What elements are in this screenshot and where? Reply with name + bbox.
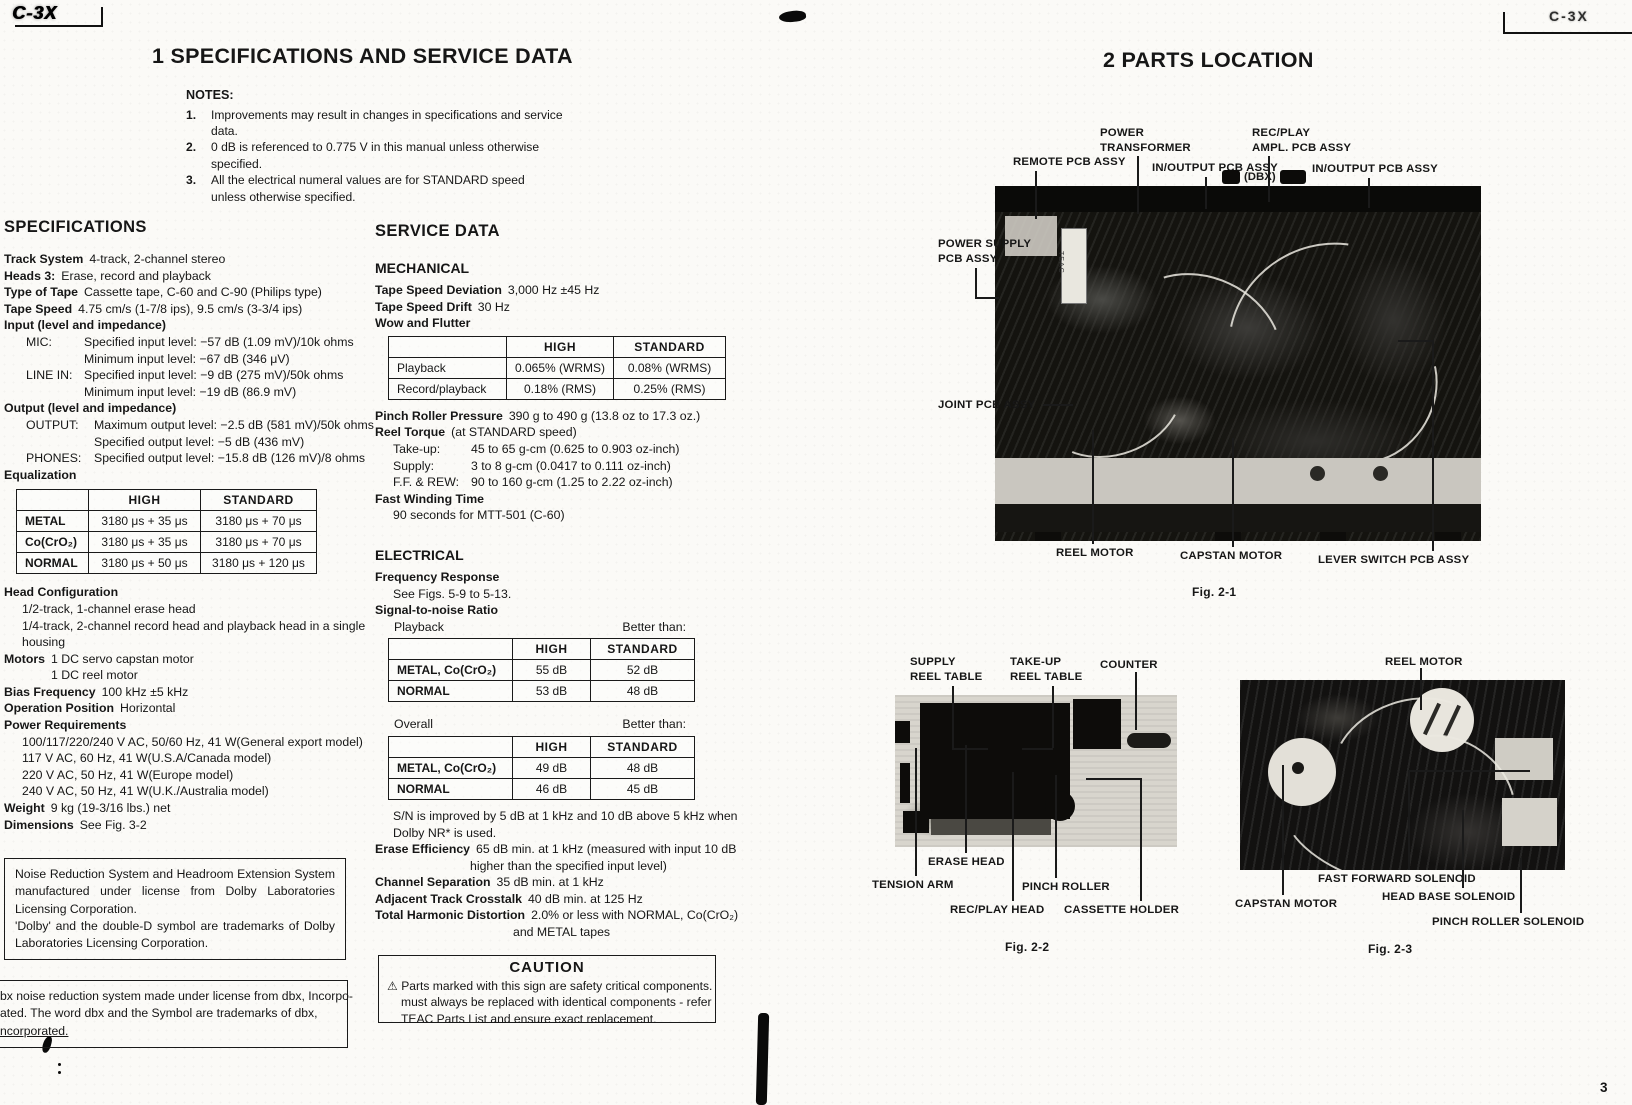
svc-reel-torque: Reel Torque(at STANDARD speed) — [375, 424, 727, 441]
warning-triangle-icon: ⚠ — [387, 979, 398, 993]
electrical-heading: ELECTRICAL — [375, 546, 727, 564]
label-cassette-holder: CASSETTE HOLDER — [1064, 903, 1179, 918]
spec-output-1: OUTPUT:Maximum output level: −2.5 dB (58… — [4, 417, 348, 434]
svc-channel-separation: Channel Separation35 dB min. at 1 kHz — [375, 874, 727, 891]
ink-dot — [58, 1063, 61, 1066]
leader-line — [1086, 778, 1141, 780]
svc-takeup: Take-up:45 to 65 g-cm (0.625 to 0.903 oz… — [375, 441, 727, 458]
leader-line — [1268, 156, 1270, 202]
spec-head-config-3: housing — [4, 634, 348, 651]
label-pinch-roller: PINCH ROLLER — [1022, 880, 1110, 895]
table-header-row: HIGH STANDARD — [17, 490, 317, 511]
foot — [1215, 532, 1241, 541]
fig-2-1-photo: TEAC — [995, 186, 1481, 541]
spec-phones: PHONES:Specified output level: −15.8 dB … — [4, 450, 348, 467]
spec-power-1: 100/117/220/240 V AC, 50/60 Hz, 41 W(Gen… — [4, 734, 348, 751]
caution-line-2: must always be replaced with identical c… — [387, 994, 707, 1010]
specifications-heading: SPECIFICATIONS — [4, 218, 348, 237]
label-reel-motor: REEL MOTOR — [1056, 546, 1134, 561]
spec-input-heading: Input (level and impedance) — [4, 317, 348, 334]
sn-overall-table: HIGH STANDARD METAL, Co(CrO₂) 49 dB 48 d… — [388, 736, 695, 800]
counter-window — [1127, 733, 1171, 748]
label-reel-motor-fig3: REEL MOTOR — [1385, 655, 1463, 670]
leader-line — [1408, 770, 1410, 870]
col-high: HIGH — [507, 336, 614, 357]
knob — [1373, 466, 1388, 481]
svc-fast-winding-heading: Fast Winding Time — [375, 491, 727, 508]
leader-line — [1137, 156, 1139, 214]
note-number: 3. — [186, 172, 211, 205]
caution-title: CAUTION — [387, 959, 707, 976]
cell-standard: 3180 μs + 70 μs — [201, 511, 317, 532]
ink-dot — [58, 1071, 61, 1074]
table-row: NORMAL 46 dB 45 dB — [389, 778, 695, 799]
note-number: 1. — [186, 107, 211, 140]
spec-head-config-1: 1/2-track, 1-channel erase head — [4, 601, 348, 618]
col-standard: STANDARD — [614, 336, 726, 357]
leader-line — [1520, 858, 1522, 913]
leader-line — [1398, 340, 1433, 342]
spec-power-4: 240 V AC, 50 Hz, 41 W(U.K./Australia mod… — [4, 783, 348, 800]
sn-playback-header: Playback Better than: — [388, 619, 692, 636]
chassis-base — [995, 504, 1481, 532]
empty-cell — [17, 490, 89, 511]
cell-high: 3180 μs + 35 μs — [89, 532, 201, 553]
leader-line — [1035, 171, 1037, 219]
label-fast-forward-solenoid: FAST FORWARD SOLENOID — [1318, 872, 1476, 887]
dolby-notice-box: Noise Reduction System and Headroom Exte… — [4, 858, 346, 960]
corner-tick-top-right — [1503, 12, 1505, 34]
spec-equalization-heading: Equalization — [4, 467, 348, 484]
empty-cell — [389, 336, 507, 357]
table-header-row: HIGH STANDARD — [389, 336, 726, 357]
leader-line — [1052, 686, 1054, 748]
round-component — [1045, 791, 1075, 821]
spec-power-heading: Power Requirements — [4, 717, 348, 734]
row-name: Playback — [389, 357, 507, 378]
spec-power-3: 220 V AC, 50 Hz, 41 W(Europe model) — [4, 767, 348, 784]
leader-line — [1232, 438, 1234, 547]
dbx-notice-2: ated. The word dbx and the Symbol are tr… — [0, 1005, 337, 1022]
label-head-base-solenoid: HEAD BASE SOLENOID — [1382, 890, 1515, 905]
col-high: HIGH — [89, 490, 201, 511]
row-name: NORMAL — [389, 778, 513, 799]
model-logo-top-right: C-3X — [1549, 8, 1589, 24]
empty-cell — [389, 736, 513, 757]
note-item-1: 1. Improvements may result in changes in… — [186, 107, 556, 140]
sn-better-than: Better than: — [622, 716, 686, 733]
corner-rule-top-left — [15, 25, 103, 27]
leader-line — [1462, 810, 1464, 888]
section-1-title: 1 SPECIFICATIONS AND SERVICE DATA — [152, 44, 573, 69]
cell-standard: 3180 μs + 70 μs — [201, 532, 317, 553]
leader-line — [1368, 178, 1370, 208]
foot — [1435, 532, 1461, 541]
note-number: 2. — [186, 139, 211, 172]
dbx-notice-3: ncorporated. — [0, 1023, 337, 1040]
leader-line — [1022, 748, 1053, 750]
spec-heads: Heads 3:Erase, record and playback — [4, 268, 348, 285]
table-row: METAL, Co(CrO₂) 49 dB 48 dB — [389, 757, 695, 778]
head-bridge — [931, 819, 1051, 835]
equalization-table: HIGH STANDARD METAL 3180 μs + 35 μs 3180… — [16, 489, 317, 574]
row-name: METAL — [17, 511, 89, 532]
label-dbx-group: (DBX) — [1222, 170, 1306, 184]
table-row: Playback 0.065% (WRMS) 0.08% (WRMS) — [389, 357, 726, 378]
label-erase-head: ERASE HEAD — [928, 855, 1005, 870]
leader-line — [952, 748, 988, 750]
spec-output-2: Specified output level: −5 dB (436 mV) — [4, 434, 348, 451]
svc-erase-2: higher than the specified input level) — [375, 858, 727, 875]
label-joint-pcb: JOINT PCB ASSY — [938, 398, 1035, 413]
label-rec-play-head: REC/PLAY HEAD — [950, 903, 1044, 918]
svc-wow-heading: Wow and Flutter — [375, 315, 727, 332]
row-name: NORMAL — [17, 553, 89, 574]
leader-line — [965, 745, 967, 853]
svc-sn-note-2: Dolby NR* is used. — [375, 825, 727, 842]
dbx-notice-1: bx noise reduction system made under lic… — [0, 988, 337, 1005]
cell-high: 0.18% (RMS) — [507, 378, 614, 399]
spec-power-2: 117 V AC, 60 Hz, 41 W(U.S.A/Canada model… — [4, 750, 348, 767]
label-tension-arm: TENSION ARM — [872, 878, 954, 893]
dolby-notice-1: Noise Reduction System and Headroom Exte… — [15, 866, 335, 918]
dolby-notice-2: 'Dolby' and the double-D symbol are trad… — [15, 918, 335, 952]
col-high: HIGH — [513, 736, 591, 757]
ink-bar — [756, 1013, 769, 1105]
section-2-title: 2 PARTS LOCATION — [1103, 48, 1314, 73]
note-item-3: 3. All the electrical numeral values are… — [186, 172, 556, 205]
label-in-output-pcb-right: IN/OUTPUT PCB ASSY — [1312, 162, 1438, 177]
cell-high: 3180 μs + 50 μs — [89, 553, 201, 574]
spec-tape-type: Type of TapeCassette tape, C-60 and C-90… — [4, 284, 348, 301]
counter-block — [1073, 699, 1121, 749]
notes-heading: NOTES: — [186, 87, 556, 104]
cell-standard: 0.08% (WRMS) — [614, 357, 726, 378]
note-item-2: 2. 0 dB is referenced to 0.775 V in this… — [186, 139, 556, 172]
row-name: Record/playback — [389, 378, 507, 399]
knob — [1310, 466, 1325, 481]
cell-standard: 0.25% (RMS) — [614, 378, 726, 399]
label-power-supply-pcb: POWER SUPPLY PCB ASSY — [938, 237, 1031, 266]
sn-playback-table: HIGH STANDARD METAL, Co(CrO₂) 55 dB 52 d… — [388, 638, 695, 702]
svc-erase: Erase Efficiency65 dB min. at 1 kHz (mea… — [375, 841, 727, 858]
transformer-sticker: TEAC — [1061, 228, 1087, 304]
caution-box: CAUTION ⚠ Parts marked with this sign ar… — [378, 955, 716, 1023]
fig-2-3-caption: Fig. 2-3 — [1368, 942, 1412, 956]
chassis-top-bar — [995, 186, 1481, 212]
label-take-up-reel-table: TAKE-UP REEL TABLE — [1010, 655, 1082, 684]
svc-thd-2: and METAL tapes — [375, 924, 727, 941]
svc-freq: See Figs. 5-9 to 5-13. — [375, 586, 727, 603]
svc-fast-winding: 90 seconds for MTT-501 (C-60) — [375, 507, 727, 524]
foot — [1320, 532, 1346, 541]
row-name: Co(CrO₂) — [17, 532, 89, 553]
cell-standard: 3180 μs + 120 μs — [201, 553, 317, 574]
svc-tape-speed-drift: Tape Speed Drift30 Hz — [375, 299, 727, 316]
table-header-row: HIGH STANDARD — [389, 736, 695, 757]
specifications-column: SPECIFICATIONS Track System4-track, 2-ch… — [4, 218, 348, 1048]
cell-high: 3180 μs + 35 μs — [89, 511, 201, 532]
mechanical-heading: MECHANICAL — [375, 259, 727, 277]
leader-line — [975, 268, 977, 298]
sn-overall-label: Overall — [394, 716, 433, 733]
leader-line — [1135, 672, 1137, 730]
col-standard: STANDARD — [591, 639, 695, 660]
spec-head-config-heading: Head Configuration — [4, 584, 348, 601]
cell-standard: 48 dB — [591, 681, 695, 702]
spec-motors: Motors1 DC servo capstan motor — [4, 651, 348, 668]
col-standard: STANDARD — [591, 736, 695, 757]
cell-high: 55 dB — [513, 660, 591, 681]
leader-line — [1092, 430, 1094, 544]
spec-motors-2: 1 DC reel motor — [4, 667, 348, 684]
spec-track-system: Track System4-track, 2-channel stereo — [4, 251, 348, 268]
svc-thd: Total Harmonic Distortion2.0% or less wi… — [375, 907, 727, 924]
spec-weight: Weight9 kg (19-3/16 lbs.) net — [4, 800, 348, 817]
table-header-row: HIGH STANDARD — [389, 639, 695, 660]
svc-crosstalk: Adjacent Track Crosstalk40 dB min. at 12… — [375, 891, 727, 908]
dark-component — [1222, 170, 1240, 184]
row-name: NORMAL — [389, 681, 513, 702]
label-remote-pcb: REMOTE PCB ASSY — [1013, 155, 1126, 170]
fig-2-2-caption: Fig. 2-2 — [1005, 940, 1049, 954]
table-row: Co(CrO₂) 3180 μs + 35 μs 3180 μs + 70 μs — [17, 532, 317, 553]
model-logo-top-left: C-3X — [12, 3, 57, 24]
note-text: 0 dB is referenced to 0.775 V in this ma… — [211, 139, 539, 172]
svc-supply: Supply:3 to 8 g-cm (0.0417 to 0.111 oz-i… — [375, 458, 727, 475]
caution-line-1: ⚠ Parts marked with this sign are safety… — [387, 978, 707, 994]
table-row: METAL 3180 μs + 35 μs 3180 μs + 70 μs — [17, 511, 317, 532]
cell-standard: 45 dB — [591, 778, 695, 799]
cell-high: 53 dB — [513, 681, 591, 702]
label-rec-play-ampl-pcb: REC/PLAY AMPL. PCB ASSY — [1252, 126, 1351, 155]
table-row: Record/playback 0.18% (RMS) 0.25% (RMS) — [389, 378, 726, 399]
corner-tick-top-left — [101, 7, 103, 27]
notes-block: NOTES: 1. Improvements may result in cha… — [186, 87, 556, 205]
col-high: HIGH — [513, 639, 591, 660]
table-row: NORMAL 53 dB 48 dB — [389, 681, 695, 702]
note-text: All the electrical numeral values are fo… — [211, 172, 525, 205]
fig-2-3-photo — [1240, 680, 1565, 870]
note-text: Improvements may result in changes in sp… — [211, 107, 563, 140]
leader-line — [1420, 668, 1422, 710]
scanned-service-manual-spread: { "corners": { "left_logo": "C-3X", "rig… — [0, 0, 1632, 1105]
empty-cell — [389, 639, 513, 660]
label-lever-switch-pcb: LEVER SWITCH PCB ASSY — [1318, 553, 1469, 568]
sn-overall-header: Overall Better than: — [388, 716, 692, 733]
svc-sn-note-1: S/N is improved by 5 dB at 1 kHz and 10 … — [375, 808, 727, 825]
ink-blob — [778, 9, 806, 23]
leader-line — [975, 297, 999, 299]
spec-mic-2: Minimum input level: −67 dB (346 μV) — [4, 351, 348, 368]
sn-playback-label: Playback — [394, 619, 444, 636]
dark-component — [1280, 170, 1306, 184]
svc-sn-heading: Signal-to-noise Ratio — [375, 602, 727, 619]
label-supply-reel-table: SUPPLY REEL TABLE — [910, 655, 982, 684]
svc-tape-speed-deviation: Tape Speed Deviation3,000 Hz ±45 Hz — [375, 282, 727, 299]
svc-freq-heading: Frequency Response — [375, 569, 727, 586]
label-pinch-roller-solenoid: PINCH ROLLER SOLENOID — [1432, 915, 1584, 930]
corner-rule-top-right — [1503, 32, 1632, 34]
sn-better-than: Better than: — [622, 619, 686, 636]
leader-line — [1282, 765, 1284, 895]
front-rail — [995, 458, 1481, 504]
service-data-heading: SERVICE DATA — [375, 222, 727, 241]
wow-flutter-table: HIGH STANDARD Playback 0.065% (WRMS) 0.0… — [388, 336, 726, 400]
foot — [1035, 532, 1061, 541]
leader-line — [915, 748, 917, 876]
spec-head-config-2: 1/4-track, 2-channel record head and pla… — [4, 618, 348, 635]
spec-tape-speed: Tape Speed4.75 cm/s (1-7/8 ips), 9.5 cm/… — [4, 301, 348, 318]
cell-standard: 48 dB — [591, 757, 695, 778]
cell-standard: 52 dB — [591, 660, 695, 681]
edge-component — [900, 763, 910, 803]
spec-output-heading: Output (level and impedance) — [4, 400, 348, 417]
service-data-column: SERVICE DATA MECHANICAL Tape Speed Devia… — [375, 222, 727, 1023]
cell-high: 46 dB — [513, 778, 591, 799]
col-standard: STANDARD — [201, 490, 317, 511]
motor-hub — [1292, 762, 1304, 774]
table-row: NORMAL 3180 μs + 50 μs 3180 μs + 120 μs — [17, 553, 317, 574]
leader-line — [1043, 404, 1073, 406]
label-capstan-motor: CAPSTAN MOTOR — [1180, 549, 1282, 564]
page-number: 3 — [1600, 1080, 1608, 1095]
row-name: METAL, Co(CrO₂) — [389, 757, 513, 778]
label-capstan-motor-fig3: CAPSTAN MOTOR — [1235, 897, 1337, 912]
caution-line-3: TEAC Parts List and ensure exact replace… — [387, 1011, 707, 1023]
dbx-notice-box: bx noise reduction system made under lic… — [0, 980, 348, 1048]
table-row: METAL, Co(CrO₂) 55 dB 52 dB — [389, 660, 695, 681]
label-dbx: (DBX) — [1242, 171, 1278, 183]
spec-dimensions: DimensionsSee Fig. 3-2 — [4, 817, 348, 834]
leader-line — [1408, 770, 1530, 772]
leader-line — [952, 686, 954, 748]
label-counter: COUNTER — [1100, 658, 1158, 673]
cell-high: 0.065% (WRMS) — [507, 357, 614, 378]
sticker-text: TEAC — [1057, 251, 1064, 275]
row-name: METAL, Co(CrO₂) — [389, 660, 513, 681]
svc-pinch-roller: Pinch Roller Pressure390 g to 490 g (13.… — [375, 408, 727, 425]
leader-line — [1055, 775, 1057, 878]
leader-line — [1205, 177, 1207, 209]
spec-operation: Operation PositionHorizontal — [4, 700, 348, 717]
edge-component — [895, 721, 910, 743]
leader-line — [1140, 778, 1142, 901]
fig-2-1-caption: Fig. 2-1 — [1192, 585, 1236, 599]
cell-high: 49 dB — [513, 757, 591, 778]
spec-mic-1: MIC:Specified input level: −57 dB (1.09 … — [4, 334, 348, 351]
svc-ffrew: F.F. & REW:90 to 160 g-cm (1.25 to 2.22 … — [375, 474, 727, 491]
spec-line-in-2: Minimum input level: −19 dB (86.9 mV) — [4, 384, 348, 401]
leader-line — [1432, 340, 1434, 551]
label-power-transformer: POWER TRANSFORMER — [1100, 126, 1191, 155]
leader-line — [1012, 772, 1014, 901]
spec-bias: Bias Frequency100 kHz ±5 kHz — [4, 684, 348, 701]
spec-line-in-1: LINE IN:Specified input level: −9 dB (27… — [4, 367, 348, 384]
